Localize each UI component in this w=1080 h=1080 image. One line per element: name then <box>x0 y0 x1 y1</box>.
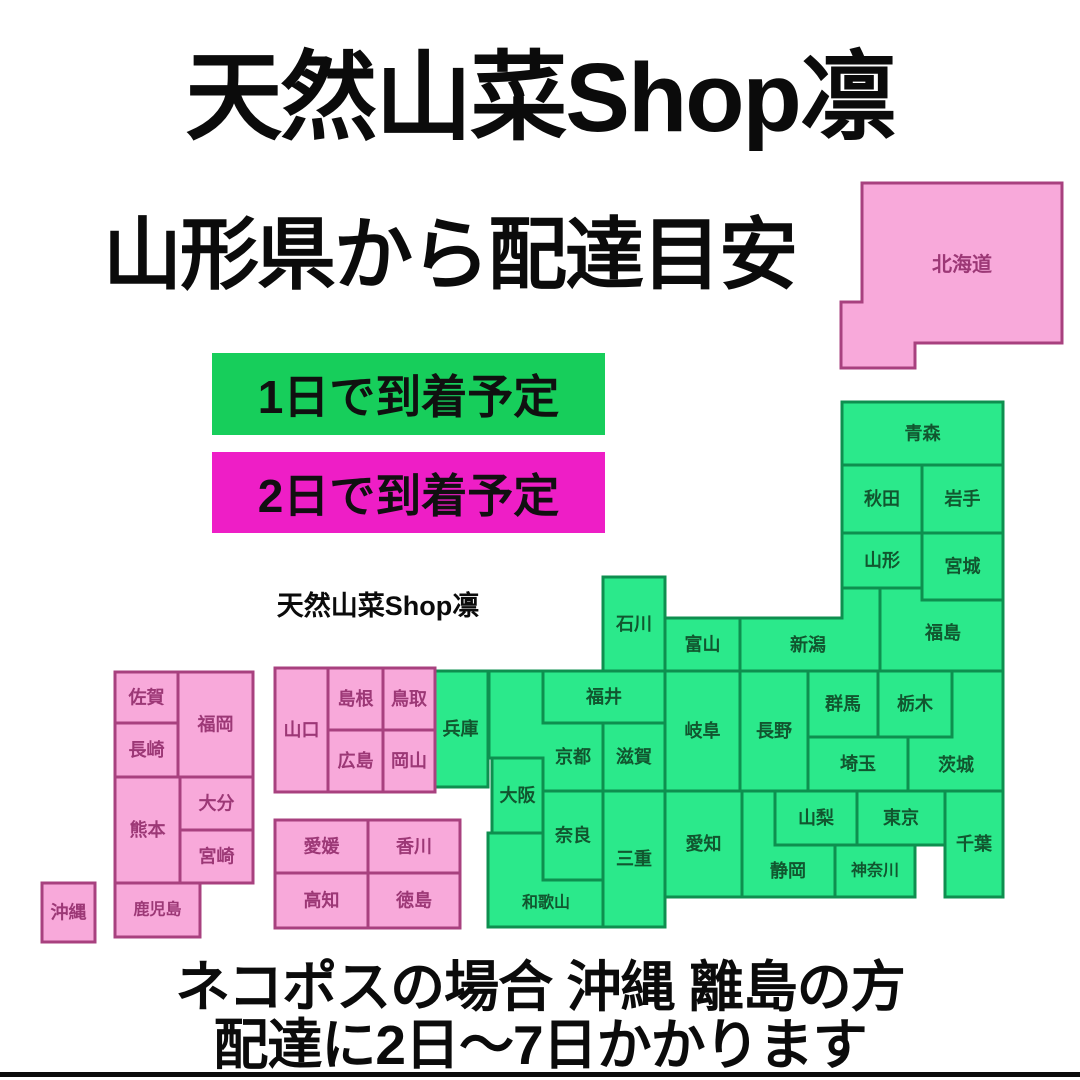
prefecture-label-tokushima: 徳島 <box>395 890 432 911</box>
footer-note-line2: 配達に2日〜7日かかります <box>0 1000 1080 1080</box>
prefecture-label-yamanashi: 山梨 <box>798 807 834 828</box>
prefecture-label-tokyo: 東京 <box>883 807 919 828</box>
prefecture-label-kagawa: 香川 <box>395 837 432 857</box>
prefecture-label-fukuoka: 福岡 <box>197 714 234 735</box>
prefecture-label-miyagi: 宮城 <box>945 556 981 577</box>
delivery-infographic: 天然山菜Shop凛 山形県から配達目安 1日で到着予定 2日で到着予定 天然山菜… <box>0 0 1080 1080</box>
prefecture-label-yamagata: 山形 <box>864 551 900 571</box>
prefecture-label-kumamoto: 熊本 <box>130 819 166 840</box>
prefecture-label-ishikawa: 石川 <box>615 614 652 634</box>
prefecture-label-gunma: 群馬 <box>825 693 861 714</box>
prefecture-label-kochi: 高知 <box>304 890 340 911</box>
prefecture-label-toyama: 富山 <box>685 634 721 655</box>
prefecture-label-hokkaido: 北海道 <box>932 252 992 276</box>
prefecture-label-fukui: 福井 <box>585 686 622 707</box>
prefecture-label-shizuoka: 静岡 <box>770 860 806 881</box>
prefecture-label-ehime: 愛媛 <box>304 836 341 857</box>
prefecture-label-gifu: 岐阜 <box>685 720 721 741</box>
prefecture-label-hyogo: 兵庫 <box>443 718 479 739</box>
prefecture-label-tottori: 鳥取 <box>391 688 428 709</box>
prefecture-label-oita: 大分 <box>199 793 235 814</box>
prefecture-label-saitama: 埼玉 <box>840 753 876 774</box>
prefecture-label-nara: 奈良 <box>554 825 591 846</box>
bottom-divider <box>0 1072 1080 1077</box>
prefecture-label-chiba: 千葉 <box>956 834 993 854</box>
japan-delivery-map: 北海道青森秋田岩手山形宮城福島新潟富山石川福井長野岐阜群馬栃木茨城埼玉千葉東京山… <box>0 0 1080 1080</box>
prefecture-label-osaka: 大阪 <box>500 785 537 806</box>
prefecture-label-yamaguchi: 山口 <box>284 720 320 740</box>
prefecture-label-okinawa: 沖縄 <box>51 902 87 923</box>
prefecture-label-fukushima: 福島 <box>924 622 961 643</box>
prefecture-label-mie: 三重 <box>616 848 652 869</box>
prefecture-label-akita: 秋田 <box>864 488 900 509</box>
prefecture-label-nagasaki: 長崎 <box>129 739 165 760</box>
prefecture-label-tochigi: 栃木 <box>897 693 934 714</box>
prefecture-label-saga: 佐賀 <box>128 687 165 708</box>
prefecture-label-kyoto: 京都 <box>555 746 591 767</box>
prefecture-label-iwate: 岩手 <box>944 488 981 509</box>
prefecture-niigata <box>740 588 880 671</box>
prefecture-label-hiroshima: 広島 <box>338 750 374 771</box>
prefecture-label-niigata: 新潟 <box>790 634 826 655</box>
prefecture-label-aichi: 愛知 <box>686 833 722 854</box>
prefecture-label-shimane: 島根 <box>338 688 374 709</box>
prefecture-label-kagoshima: 鹿児島 <box>133 900 181 919</box>
prefecture-label-aomori: 青森 <box>905 423 942 444</box>
prefecture-label-shiga: 滋賀 <box>616 746 652 767</box>
prefecture-label-ibaraki: 茨城 <box>938 754 974 775</box>
prefecture-label-wakayama: 和歌山 <box>522 893 570 912</box>
prefecture-label-kanagawa: 神奈川 <box>851 861 899 880</box>
prefecture-label-nagano: 長野 <box>756 721 792 741</box>
prefecture-label-okayama: 岡山 <box>391 751 427 771</box>
prefecture-label-miyazaki: 宮崎 <box>199 846 235 867</box>
